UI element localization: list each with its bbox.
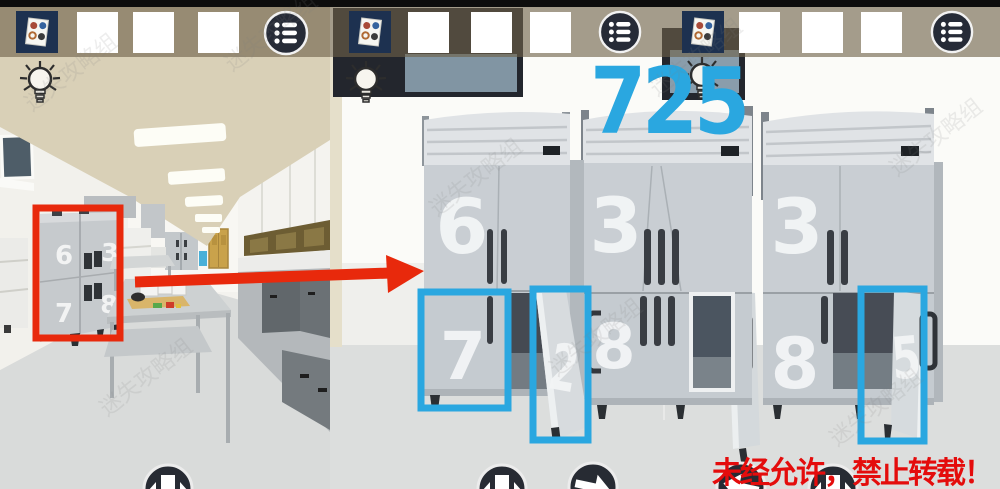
fridge-badge: [543, 146, 560, 155]
fridge-number: 8: [771, 323, 820, 405]
hint-button[interactable]: [340, 57, 392, 113]
fridge-number: 3: [590, 181, 643, 270]
fridge-bank[interactable]: 6 3 7 8: [40, 206, 120, 346]
mini-fridge-number: 7: [55, 299, 73, 329]
top-black-strip: [0, 0, 1000, 7]
menu-icon: [263, 10, 309, 56]
step-back-button[interactable]: [474, 461, 530, 489]
fridge-number: 3: [771, 182, 824, 271]
down-arrow-icon: [474, 461, 530, 489]
right-arrow-icon: [565, 459, 621, 489]
fridge-number: 7: [440, 318, 486, 395]
water-cooler[interactable]: [199, 251, 207, 266]
left-counter-equipment: [0, 238, 28, 333]
inventory-slot-empty[interactable]: [861, 12, 902, 53]
mini-fridge-number: 6: [55, 241, 73, 271]
inventory-slot-empty[interactable]: [739, 12, 780, 53]
inventory-slot-empty[interactable]: [198, 12, 239, 53]
menu-icon: [930, 10, 974, 54]
turn-right-button[interactable]: [565, 459, 621, 489]
fridge-badge: [901, 146, 919, 156]
open-door-digit: 5: [889, 323, 924, 393]
code-annotation: 725: [590, 56, 746, 148]
fridge-open-compartment: [693, 296, 731, 357]
inventory-item-card[interactable]: [682, 11, 724, 53]
menu-button[interactable]: [263, 10, 309, 56]
hint-button[interactable]: [14, 57, 66, 113]
step-back-button[interactable]: [140, 461, 196, 489]
down-arrow-icon: [140, 461, 196, 489]
light-bulb-icon: [14, 57, 66, 113]
pot: [131, 293, 145, 302]
inventory-slot-empty[interactable]: [408, 12, 449, 53]
copyright-notice: 未经允许，禁止转载！: [712, 448, 992, 489]
inventory-slot-empty[interactable]: [802, 12, 843, 53]
inventory-item-card[interactable]: [16, 11, 58, 53]
inventory-slot-empty[interactable]: [471, 12, 512, 53]
inventory-slot-empty[interactable]: [133, 12, 174, 53]
inventory-slot-empty[interactable]: [530, 12, 571, 53]
inventory-slot-empty[interactable]: [77, 12, 118, 53]
menu-button[interactable]: [930, 10, 976, 56]
inventory-item-card[interactable]: [349, 11, 391, 53]
light-bulb-icon: [340, 57, 392, 113]
game-screenshot: 6 3 7 8: [0, 0, 1000, 489]
fridge-number: 6: [436, 182, 489, 271]
